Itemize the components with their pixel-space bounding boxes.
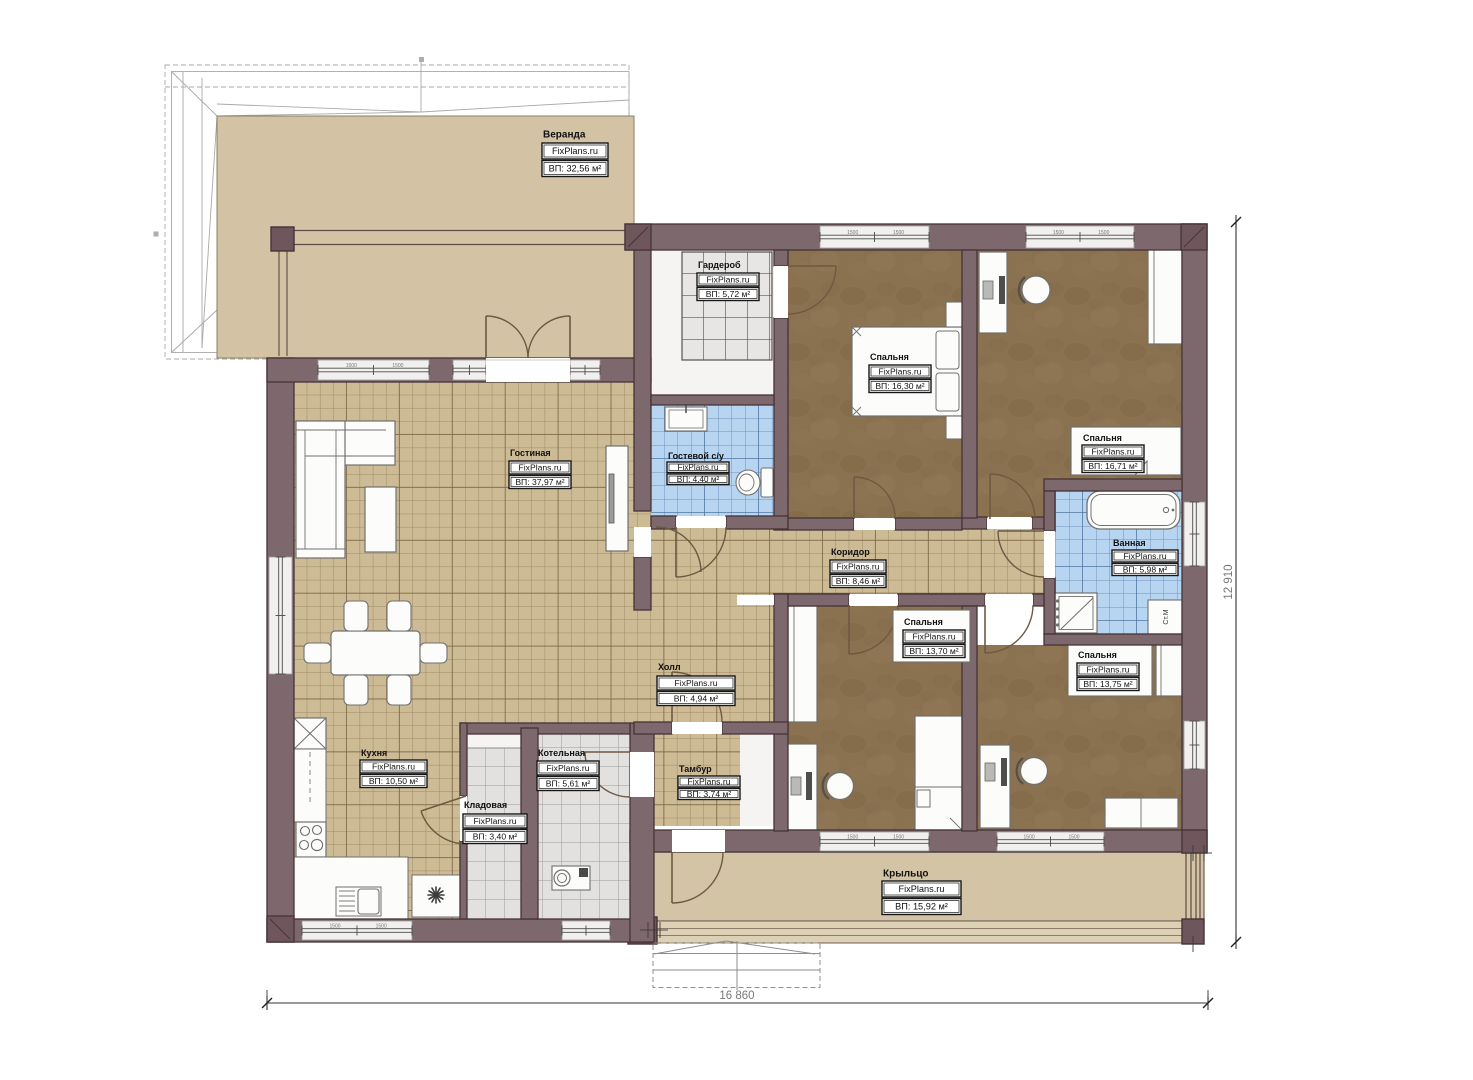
svg-text:ВП: 4,40 м²: ВП: 4,40 м² bbox=[677, 475, 720, 484]
svg-text:ВП: 15,92 м²: ВП: 15,92 м² bbox=[895, 902, 948, 912]
svg-text:Спальня: Спальня bbox=[904, 617, 943, 627]
svg-text:Тамбур: Тамбур bbox=[679, 764, 712, 774]
svg-text:1500: 1500 bbox=[1068, 835, 1079, 841]
svg-text:1500: 1500 bbox=[893, 230, 904, 236]
svg-text:FixPlans.ru: FixPlans.ru bbox=[519, 462, 562, 472]
svg-text:Веранда: Веранда bbox=[543, 130, 586, 141]
svg-text:Холл: Холл bbox=[658, 662, 681, 672]
svg-text:ВП: 3,40 м²: ВП: 3,40 м² bbox=[473, 831, 518, 841]
svg-text:ВП: 5,72 м²: ВП: 5,72 м² bbox=[706, 289, 751, 299]
svg-text:Коридор: Коридор bbox=[831, 547, 870, 557]
svg-text:ВП: 3,74 м²: ВП: 3,74 м² bbox=[687, 789, 732, 799]
svg-text:FixPlans.ru: FixPlans.ru bbox=[678, 463, 719, 472]
svg-text:1500: 1500 bbox=[346, 363, 357, 369]
svg-text:1500: 1500 bbox=[376, 924, 387, 930]
svg-text:FixPlans.ru: FixPlans.ru bbox=[1092, 446, 1135, 456]
svg-text:ВП: 4,94 м²: ВП: 4,94 м² bbox=[674, 693, 719, 703]
svg-text:Гардероб: Гардероб bbox=[698, 260, 741, 270]
svg-text:ВП: 16,30 м²: ВП: 16,30 м² bbox=[875, 381, 924, 391]
svg-text:ВП: 37,97 м²: ВП: 37,97 м² bbox=[515, 477, 564, 487]
svg-text:FixPlans.ru: FixPlans.ru bbox=[707, 274, 750, 284]
svg-text:Спальня: Спальня bbox=[1083, 433, 1122, 443]
svg-text:1500: 1500 bbox=[847, 835, 858, 841]
svg-text:ВП: 13,70 м²: ВП: 13,70 м² bbox=[909, 646, 958, 656]
svg-text:1500: 1500 bbox=[893, 835, 904, 841]
svg-text:Гостиная: Гостиная bbox=[510, 448, 551, 458]
svg-text:ВП: 8,46 м²: ВП: 8,46 м² bbox=[836, 576, 881, 586]
svg-text:ВП: 5,61 м²: ВП: 5,61 м² bbox=[546, 778, 591, 788]
svg-text:FixPlans.ru: FixPlans.ru bbox=[547, 763, 590, 773]
svg-text:FixPlans.ru: FixPlans.ru bbox=[474, 816, 517, 826]
svg-text:Спальня: Спальня bbox=[870, 352, 909, 362]
svg-text:16 860: 16 860 bbox=[719, 990, 754, 1002]
svg-text:FixPlans.ru: FixPlans.ru bbox=[899, 884, 945, 894]
svg-text:Кухня: Кухня bbox=[361, 748, 387, 758]
svg-text:FixPlans.ru: FixPlans.ru bbox=[372, 761, 415, 771]
svg-text:1500: 1500 bbox=[329, 924, 340, 930]
svg-text:1500: 1500 bbox=[1098, 230, 1109, 236]
svg-text:ВП: 10,50 м²: ВП: 10,50 м² bbox=[369, 776, 418, 786]
svg-text:ВП: 13,75 м²: ВП: 13,75 м² bbox=[1083, 679, 1132, 689]
svg-text:1500: 1500 bbox=[392, 363, 403, 369]
svg-text:Ст.М: Ст.М bbox=[1163, 609, 1170, 624]
svg-text:Котельная: Котельная bbox=[538, 748, 585, 758]
svg-text:FixPlans.ru: FixPlans.ru bbox=[675, 678, 718, 688]
svg-text:Крыльцо: Крыльцо bbox=[883, 869, 929, 880]
svg-text:Гостевой с/у: Гостевой с/у bbox=[668, 451, 724, 461]
svg-text:12 910: 12 910 bbox=[1223, 564, 1235, 599]
svg-text:Кладовая: Кладовая bbox=[464, 800, 507, 810]
svg-text:ВП: 32,56 м²: ВП: 32,56 м² bbox=[549, 164, 602, 174]
svg-text:FixPlans.ru: FixPlans.ru bbox=[1124, 551, 1167, 561]
svg-text:Спальня: Спальня bbox=[1078, 650, 1117, 660]
svg-text:1500: 1500 bbox=[1024, 835, 1035, 841]
svg-text:ВП: 16,71 м²: ВП: 16,71 м² bbox=[1088, 461, 1137, 471]
svg-text:Ванная: Ванная bbox=[1113, 538, 1146, 548]
svg-text:FixPlans.ru: FixPlans.ru bbox=[552, 146, 598, 156]
svg-text:FixPlans.ru: FixPlans.ru bbox=[688, 776, 731, 786]
svg-text:ВП: 5,98 м²: ВП: 5,98 м² bbox=[1123, 564, 1168, 574]
svg-text:FixPlans.ru: FixPlans.ru bbox=[913, 631, 956, 641]
svg-text:FixPlans.ru: FixPlans.ru bbox=[879, 366, 922, 376]
svg-text:1500: 1500 bbox=[1053, 230, 1064, 236]
svg-text:1500: 1500 bbox=[847, 230, 858, 236]
svg-text:FixPlans.ru: FixPlans.ru bbox=[837, 561, 880, 571]
svg-text:FixPlans.ru: FixPlans.ru bbox=[1087, 664, 1130, 674]
